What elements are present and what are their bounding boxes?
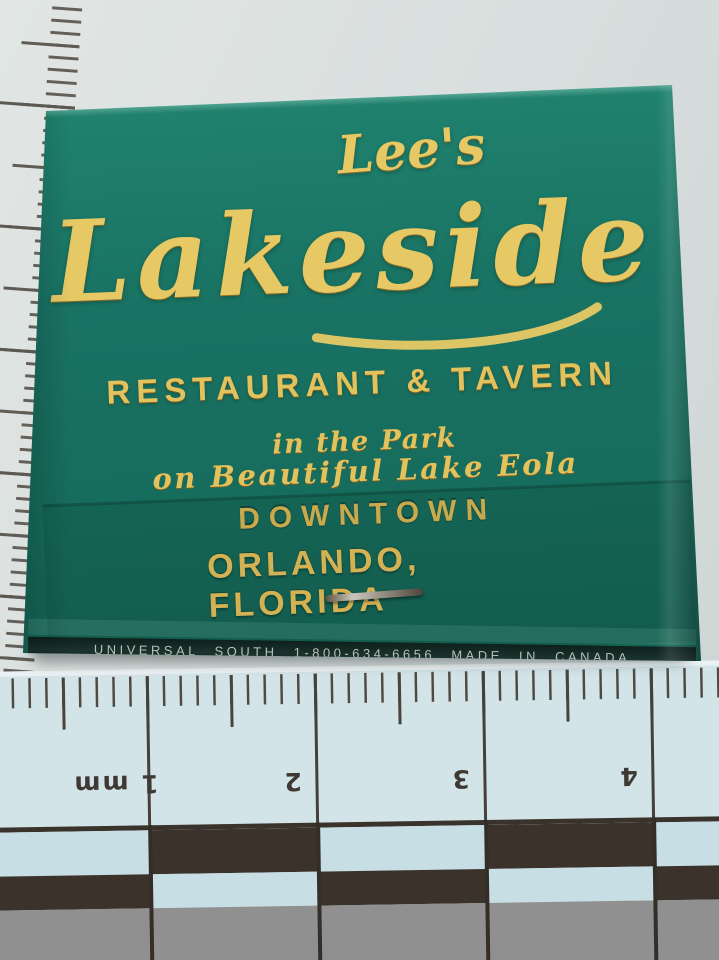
checker-square <box>0 874 151 911</box>
logo-underline-swash <box>307 301 609 364</box>
checker-square <box>655 865 719 900</box>
flap-location-line1: DOWNTOWN <box>238 493 497 537</box>
ruler-label-2cm: 2 <box>282 767 302 796</box>
flap-location-line2: ORLANDO, FLORIDA <box>206 536 533 626</box>
tagline-line1: in the Park <box>272 422 458 460</box>
logo-script-text: Lakeside <box>50 185 657 320</box>
ruler-label-3cm: 3 <box>450 764 470 793</box>
matchbook-top-edge-highlight <box>46 83 674 118</box>
horizontal-ruler <box>0 660 719 833</box>
tagline-line2: on Beautiful Lake Eola <box>152 446 580 496</box>
matchbook-bottom-edge-highlight <box>28 619 696 645</box>
photo-scene: 1 mm 2 3 4 Lee's Lakeside RESTAURA <box>0 0 719 960</box>
flap-fold-line <box>43 479 691 507</box>
matchbook-front-cover: Lee's Lakeside RESTAURANT & TAVERN in th… <box>27 86 696 670</box>
checker-square <box>150 828 319 875</box>
staple <box>325 588 423 602</box>
matchbook: Lee's Lakeside RESTAURANT & TAVERN in th… <box>22 84 704 670</box>
checker-square <box>486 822 655 869</box>
ruler-label-1cm: 1 mm <box>72 769 159 799</box>
flap-shade <box>43 481 697 666</box>
subtitle-text: RESTAURANT & TAVERN <box>106 354 619 412</box>
calibration-target: 1 mm 2 3 4 <box>0 660 719 960</box>
brand-script-text: Lee's <box>335 115 487 187</box>
ruler-label-4cm: 4 <box>618 762 638 791</box>
gray-calibration-band <box>0 899 719 960</box>
checker-square <box>319 869 488 906</box>
